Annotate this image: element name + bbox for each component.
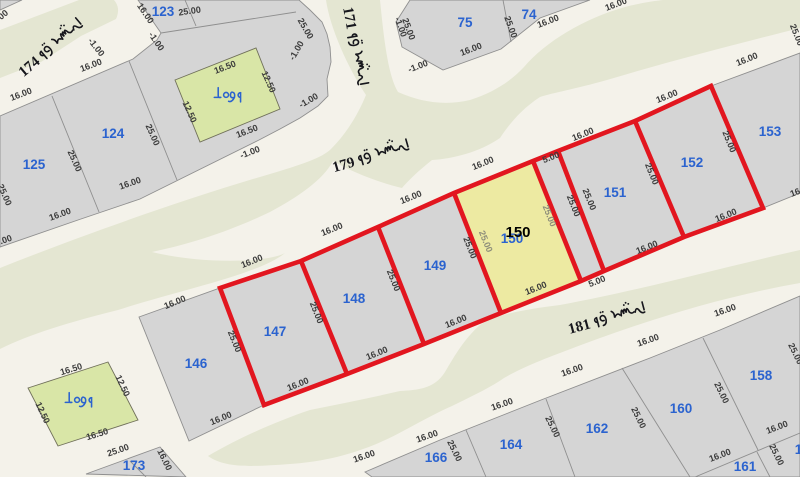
svg-text:74: 74 [521,7,537,22]
svg-text:161: 161 [734,459,757,474]
svg-text:147: 147 [264,324,287,339]
svg-text:75: 75 [457,15,473,30]
svg-text:160: 160 [670,401,693,416]
svg-text:125: 125 [23,157,46,172]
svg-text:173: 173 [123,458,146,473]
svg-text:164: 164 [500,437,523,452]
svg-text:146: 146 [185,356,208,371]
svg-text:161: 161 [795,442,800,457]
svg-text:166: 166 [425,450,448,465]
svg-text:123: 123 [152,4,175,19]
svg-text:148: 148 [343,291,366,306]
svg-text:162: 162 [586,421,609,436]
svg-text:153: 153 [759,124,782,139]
svg-text:149: 149 [424,258,447,273]
svg-text:151: 151 [604,185,627,200]
svg-text:124: 124 [102,126,125,141]
svg-text:150: 150 [505,224,530,241]
svg-text:158: 158 [750,368,773,383]
svg-text:152: 152 [681,155,704,170]
